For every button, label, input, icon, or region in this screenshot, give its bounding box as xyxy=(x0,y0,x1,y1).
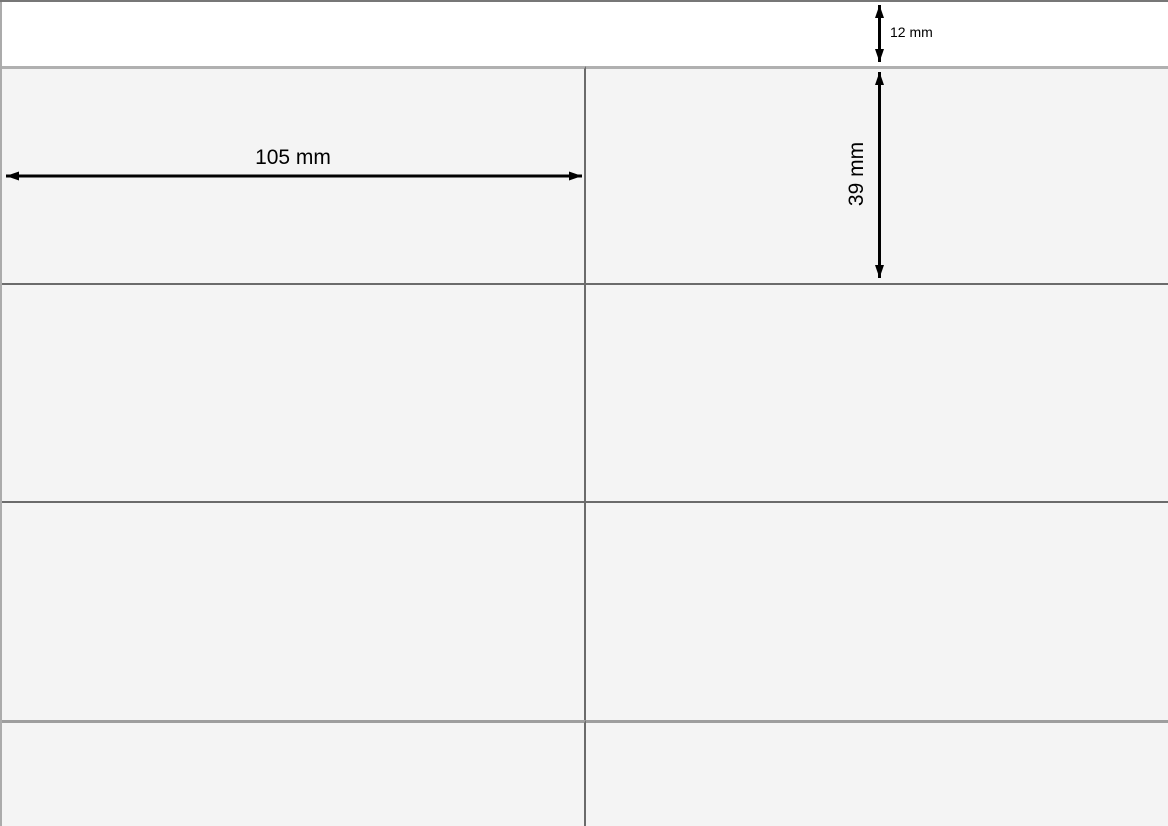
label-width-dimension-label: 105 mm xyxy=(0,146,586,170)
top-margin-strip xyxy=(0,2,1168,66)
label-cell xyxy=(0,283,586,501)
label-cell xyxy=(0,66,586,283)
label-cell xyxy=(0,501,586,720)
page-top-edge xyxy=(0,0,1168,2)
label-grid xyxy=(0,66,1168,826)
page-left-edge xyxy=(0,0,2,826)
label-cell xyxy=(586,66,1168,283)
label-cell xyxy=(586,283,1168,501)
top-margin-dimension-label: 12 mm xyxy=(890,24,933,40)
label-cell xyxy=(0,720,586,826)
label-cell xyxy=(586,501,1168,720)
label-sheet: 12 mm 105 mm 39 mm xyxy=(0,0,1168,826)
label-cell xyxy=(586,720,1168,826)
label-height-dimension-label: 39 mm xyxy=(845,142,869,206)
